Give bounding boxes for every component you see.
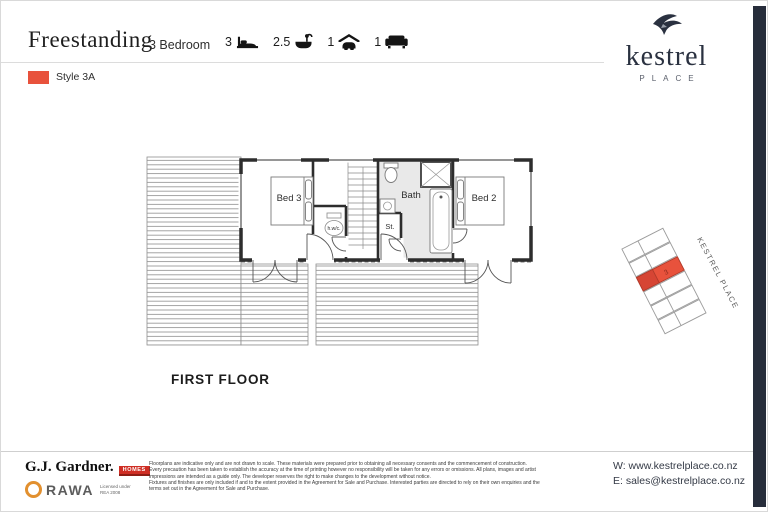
bed2-label: Bed 2 xyxy=(472,193,497,204)
brand-tagline: PLACE xyxy=(599,74,734,83)
contact-block: W: www.kestrelplace.co.nz E: sales@kestr… xyxy=(613,459,745,489)
stairs xyxy=(348,161,378,257)
right-accent-bar xyxy=(753,6,766,507)
store-floor xyxy=(379,214,401,259)
rawa-license-text: Licensed under REA 2008 xyxy=(100,484,131,495)
spec-baths: 2.5 xyxy=(273,33,313,50)
floorplan-svg: Bed 3 Bed 2 Bath St. h.w/c. xyxy=(141,151,546,351)
spec-garage: 1 xyxy=(327,33,360,50)
kestrel-bird-icon xyxy=(647,24,687,41)
bedroom-count-label: 3 Bedroom xyxy=(149,38,210,52)
living-icon xyxy=(385,34,408,49)
brochure-page: Freestanding 3 Bedroom 3 2.5 1 xyxy=(0,0,768,512)
spec-living: 1 xyxy=(374,34,408,49)
spec-icons-row: 3 2.5 1 1 xyxy=(225,33,408,50)
floorplan-title: FIRST FLOOR xyxy=(171,372,270,387)
builder-logos: G.J. Gardner. HOMES RAWA Licensed under … xyxy=(25,459,150,498)
rawa-logo: RAWA xyxy=(46,482,94,498)
sitemap-svg: 3 KESTREL PLACE xyxy=(604,213,754,353)
rawa-ring-icon xyxy=(25,481,42,498)
brand-name: kestrel xyxy=(599,43,734,71)
living-count: 1 xyxy=(374,35,381,49)
bath-label: Bath xyxy=(401,190,421,201)
wc-label: h.w/c. xyxy=(327,226,340,232)
website-link[interactable]: W: www.kestrelplace.co.nz xyxy=(613,459,745,474)
bed-icon xyxy=(236,34,259,50)
bed-count: 3 xyxy=(225,35,232,49)
email-link[interactable]: E: sales@kestrelplace.co.nz xyxy=(613,474,745,489)
disclaimer-text: Floorplans are indicative only and are n… xyxy=(149,461,607,492)
footer-divider xyxy=(1,451,753,452)
store-label: St. xyxy=(385,222,394,231)
page-title: Freestanding xyxy=(28,27,153,53)
bath-icon xyxy=(294,33,313,50)
vanity-icon xyxy=(380,199,395,213)
header-divider xyxy=(1,62,604,63)
garage-count: 1 xyxy=(327,35,334,49)
sitemap-lots xyxy=(622,228,706,334)
toilet-icon xyxy=(385,168,397,183)
spec-beds: 3 xyxy=(225,34,259,50)
style-color-swatch xyxy=(28,71,49,84)
gj-gardner-logo: G.J. Gardner. xyxy=(25,459,114,476)
bed3-label: Bed 3 xyxy=(277,193,302,204)
style-label: Style 3A xyxy=(56,71,95,83)
homes-badge: HOMES xyxy=(119,466,150,477)
bath-count: 2.5 xyxy=(273,35,290,49)
sitemap-street-label: KESTREL PLACE xyxy=(695,236,741,311)
kestrel-logo: kestrel PLACE xyxy=(599,11,734,83)
garage-icon xyxy=(338,33,360,50)
